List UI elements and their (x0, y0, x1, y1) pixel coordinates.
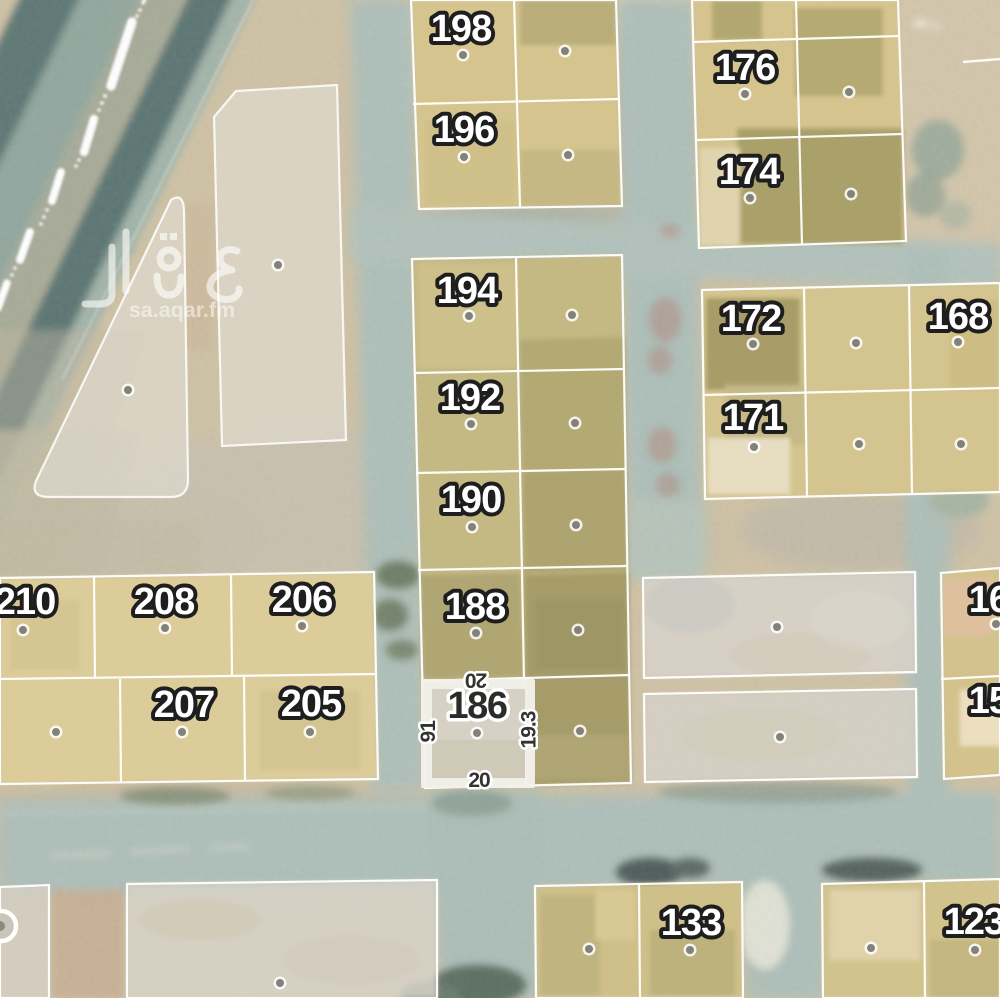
svg-text:172: 172 (721, 298, 781, 340)
svg-text:192: 192 (440, 377, 500, 419)
svg-text:sa.aqar.fm: sa.aqar.fm (129, 298, 235, 322)
svg-text:133: 133 (661, 902, 721, 944)
svg-text:208: 208 (134, 581, 194, 623)
svg-text:188: 188 (445, 586, 505, 628)
svg-text:20: 20 (466, 669, 488, 692)
svg-text:20: 20 (468, 769, 490, 792)
svg-text:210: 210 (0, 581, 55, 623)
svg-text:176: 176 (715, 47, 775, 89)
svg-text:198: 198 (431, 8, 491, 50)
svg-text:168: 168 (928, 296, 988, 338)
svg-text:196: 196 (434, 109, 494, 151)
svg-text:153: 153 (969, 680, 1000, 722)
svg-text:194: 194 (437, 270, 498, 312)
svg-text:19.3: 19.3 (518, 711, 541, 748)
svg-text:123: 123 (944, 901, 1000, 943)
svg-text:206: 206 (272, 579, 332, 621)
svg-text:207: 207 (154, 684, 214, 726)
svg-text:171: 171 (723, 397, 784, 439)
svg-text:163: 163 (969, 579, 1000, 621)
svg-text:205: 205 (281, 683, 342, 725)
svg-text:190: 190 (441, 479, 501, 521)
svg-text:91: 91 (417, 720, 440, 743)
svg-text:174: 174 (719, 151, 780, 193)
